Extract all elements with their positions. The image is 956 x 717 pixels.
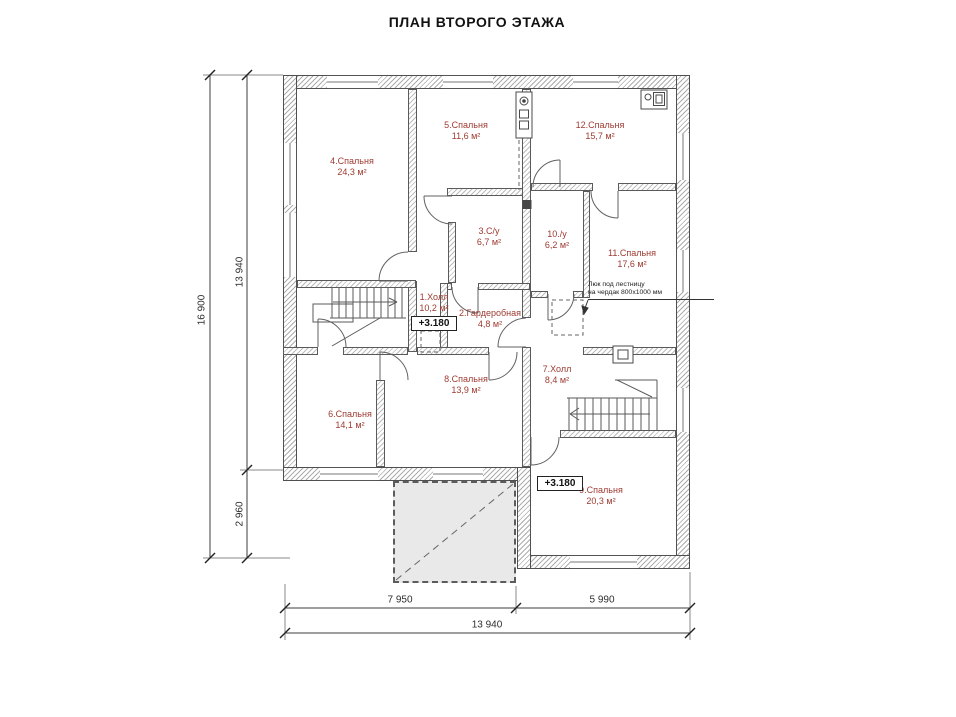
wall-segment: [531, 291, 548, 298]
window-opening: [433, 467, 483, 481]
wall-segment: [283, 347, 318, 355]
room-label-3: 3.С/у6,7 м²: [477, 226, 501, 249]
room-label-12: 12.Спальня15,7 м²: [576, 120, 625, 143]
wall-segment: [618, 183, 676, 191]
room-label-5: 5.Спальня11,6 м²: [444, 120, 488, 143]
chimney-icon: [641, 90, 667, 109]
wall-segment: [408, 89, 417, 252]
dimension-label-bottom-right: 5 990: [589, 595, 614, 606]
window-opening: [443, 75, 493, 89]
attic-hatch-note: Люк под лестницу на чердак 800х1000 мм: [588, 281, 714, 300]
dimension-label-bottom-left: 7 950: [387, 595, 412, 606]
level-badge: +3.180: [537, 476, 583, 491]
wall-segment: [417, 347, 489, 355]
room-label-2: 2.Гардеробная4,8 м²: [459, 308, 521, 331]
window-opening: [283, 143, 297, 205]
dimension-label-left-lower: 2 960: [235, 501, 246, 526]
window-opening: [676, 388, 690, 432]
dimension-label-bottom-total: 13 940: [472, 620, 503, 631]
window-opening: [320, 467, 378, 481]
room-label-10: 10./у6,2 м²: [545, 229, 569, 252]
wall-segment: [376, 380, 385, 467]
level-badge: +3.180: [411, 316, 457, 331]
plan-linework-svg: [0, 0, 956, 717]
wall-segment: [283, 75, 297, 481]
staircase-lower: [567, 380, 657, 430]
wall-segment: [447, 188, 530, 196]
wall-segment: [297, 280, 416, 288]
window-opening: [570, 555, 637, 569]
dimension-label-left-total: 16 900: [197, 295, 208, 326]
wall-segment: [343, 347, 408, 355]
wall-segment: [531, 183, 593, 191]
wall-segment: [522, 347, 531, 467]
room-label-9: 9.Спальня20,3 м²: [579, 485, 623, 508]
wall-segment: [573, 291, 583, 298]
note-leader-line: [582, 300, 588, 314]
room-label-4: 4.Спальня24,3 м²: [330, 156, 374, 179]
plan-title: ПЛАН ВТОРОГО ЭТАЖА: [389, 14, 566, 30]
wall-segment: [448, 222, 456, 283]
room-label-1: 1.Холл10,2 м²: [419, 292, 448, 315]
floor-plan: ПЛАН ВТОРОГО ЭТАЖА: [0, 0, 956, 717]
room-label-6: 6.Спальня14,1 м²: [328, 409, 372, 432]
staircase-upper: [313, 288, 406, 346]
wall-segment: [560, 430, 676, 438]
window-opening: [283, 213, 297, 277]
room-label-8: 8.Спальня13,9 м²: [444, 374, 488, 397]
room-label-7: 7.Холл8,4 м²: [543, 364, 572, 387]
wall-segment: [517, 467, 531, 569]
wall-segment: [583, 347, 676, 355]
terrace-area: [393, 481, 516, 583]
window-opening: [676, 133, 690, 180]
window-opening: [327, 75, 378, 89]
dimension-label-left-upper: 13 940: [235, 257, 246, 288]
wall-segment: [478, 283, 530, 290]
window-opening: [573, 75, 618, 89]
room-label-11: 11.Спальня17,6 м²: [608, 248, 656, 271]
